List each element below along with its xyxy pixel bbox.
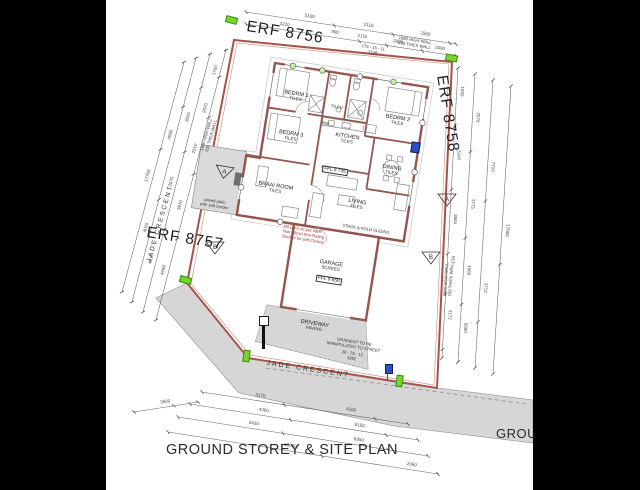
db-geyser-icon [410, 141, 421, 153]
svg-text:2060: 2060 [407, 461, 418, 468]
section-marker-b-right: B [420, 250, 442, 266]
section-marker-b-left: B [204, 240, 226, 256]
lamp-post-icon [262, 325, 265, 349]
svg-text:17060: 17060 [505, 224, 511, 237]
svg-text:5147: 5147 [456, 150, 462, 161]
svg-text:4060: 4060 [159, 264, 166, 275]
section-marker-a-right: A [436, 192, 458, 208]
drawing-canvas: 4060397025102570170045152570350040154060… [0, 0, 640, 490]
svg-text:2560: 2560 [420, 30, 431, 37]
svg-text:3775: 3775 [470, 199, 476, 210]
passage-dim: 900 [322, 121, 330, 127]
drawing-title: GROUND STOREY & SITE PLAN [166, 442, 398, 458]
svg-text:B: B [213, 245, 217, 251]
svg-text:4360: 4360 [259, 407, 270, 414]
svg-text:3430: 3430 [249, 420, 260, 427]
house-outer-wall [237, 61, 428, 242]
svg-text:3650: 3650 [160, 398, 171, 405]
svg-text:A: A [222, 169, 227, 176]
svg-text:5880: 5880 [463, 323, 469, 334]
svg-text:5150: 5150 [354, 422, 365, 429]
svg-text:4060: 4060 [166, 129, 174, 140]
svg-text:5100: 5100 [305, 13, 316, 20]
svg-text:A: A [445, 197, 449, 203]
section-marker-a-patio: A [212, 163, 236, 182]
svg-text:17765: 17765 [143, 168, 151, 182]
svg-text:2110: 2110 [363, 22, 374, 28]
svg-text:2570: 2570 [475, 112, 481, 123]
svg-text:3772: 3772 [483, 283, 489, 294]
svg-text:7710: 7710 [490, 162, 496, 173]
svg-text:B: B [429, 255, 433, 261]
adjacent-drawing-title-partial: GROU [496, 426, 533, 441]
drawing-sheet: 4060397025102570170045152570350040154060… [106, 0, 533, 490]
municipal-connection-stem [387, 372, 388, 380]
svg-text:3500: 3500 [184, 111, 191, 122]
svg-text:3170: 3170 [255, 392, 266, 399]
svg-text:3172: 3172 [447, 310, 453, 321]
svg-text:1980: 1980 [466, 265, 472, 276]
svg-text:3664: 3664 [453, 214, 459, 225]
